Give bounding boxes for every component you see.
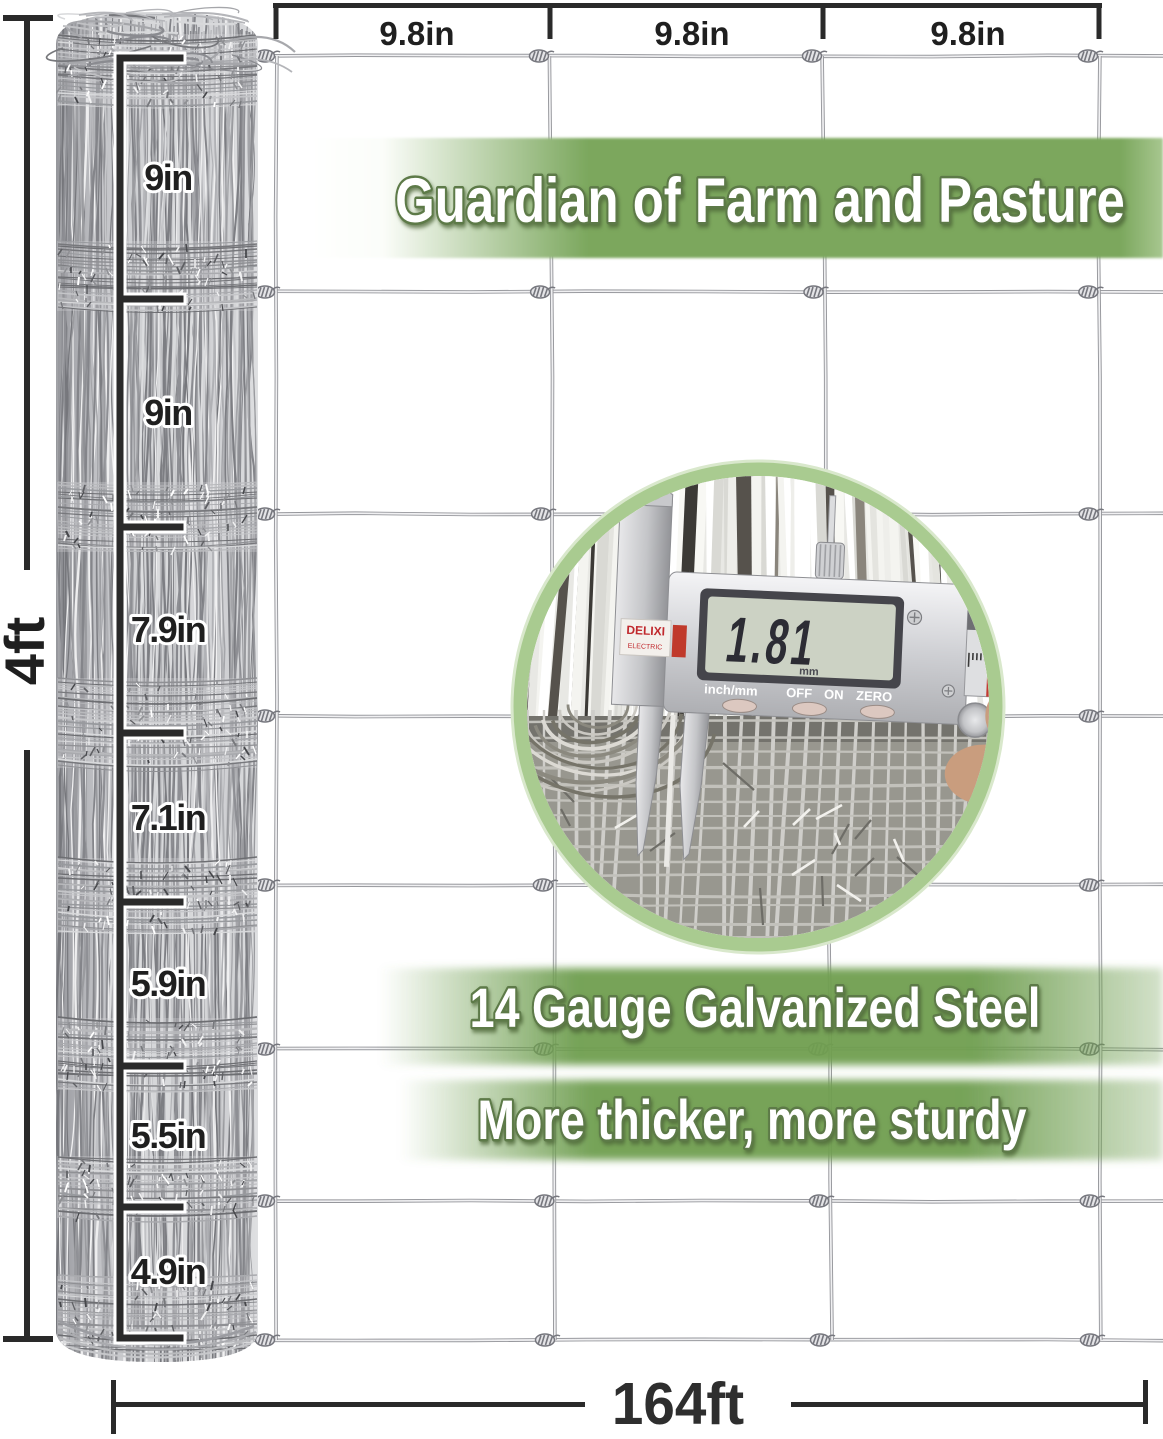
svg-text:9.8in: 9.8in [654, 15, 729, 52]
svg-text:164ft: 164ft [612, 1372, 744, 1434]
svg-text:4ft: 4ft [0, 617, 56, 685]
svg-text:inch/mm: inch/mm [704, 681, 758, 698]
svg-text:9.8in: 9.8in [379, 15, 454, 52]
svg-text:4.9in: 4.9in [131, 1251, 206, 1292]
svg-text:ON: ON [824, 687, 844, 703]
svg-text:7.9in: 7.9in [131, 609, 206, 650]
svg-text:DELIXI: DELIXI [626, 623, 665, 639]
svg-text:9in: 9in [144, 392, 192, 433]
svg-text:5.5in: 5.5in [131, 1115, 206, 1156]
svg-text:9in: 9in [144, 157, 192, 198]
svg-text:5.9in: 5.9in [131, 963, 206, 1004]
svg-text:7.1in: 7.1in [131, 797, 206, 838]
svg-text:ZERO: ZERO [856, 688, 893, 705]
svg-text:9.8in: 9.8in [930, 15, 1005, 52]
svg-text:Guardian of Farm and Pasture: Guardian of Farm and Pasture [395, 166, 1125, 236]
svg-text:OFF: OFF [786, 685, 813, 701]
svg-text:More thicker, more sturdy: More thicker, more sturdy [477, 1088, 1026, 1151]
svg-text:14 Gauge Galvanized Steel: 14 Gauge Galvanized Steel [470, 976, 1041, 1039]
svg-text:mm: mm [799, 665, 819, 678]
